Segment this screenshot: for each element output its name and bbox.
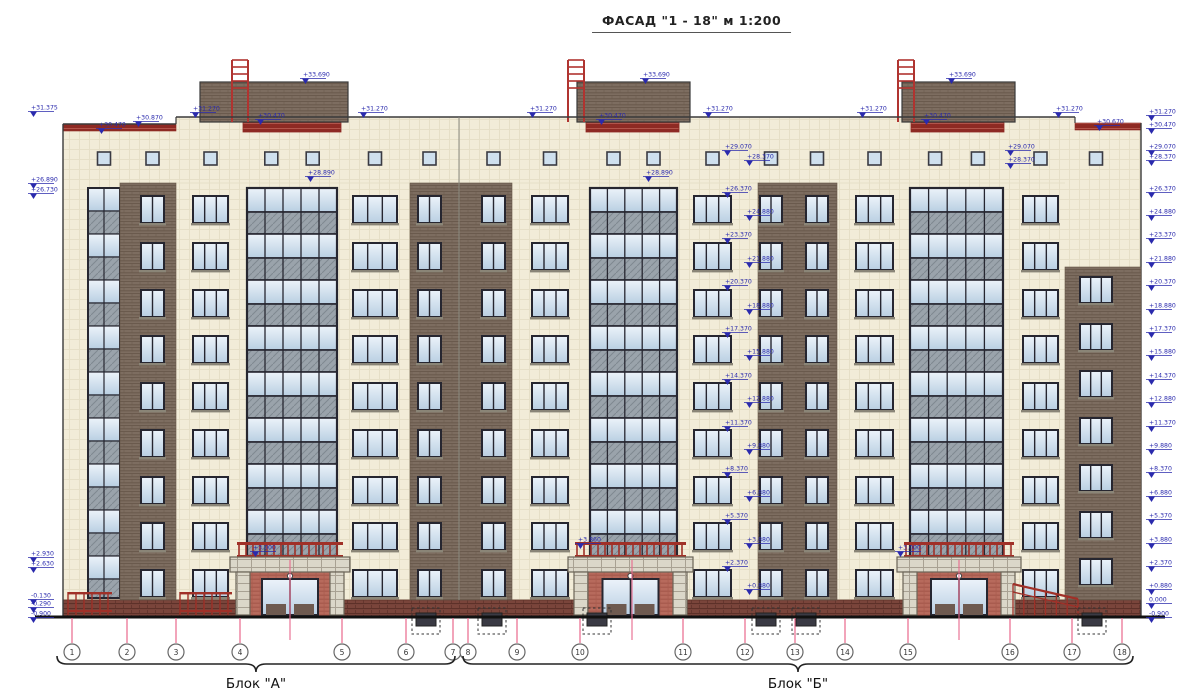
svg-text:+31.270: +31.270	[530, 106, 557, 113]
svg-text:+3.880: +3.880	[1149, 537, 1172, 544]
svg-text:2: 2	[125, 648, 130, 657]
svg-text:-0.900: -0.900	[1149, 611, 1169, 618]
svg-text:9: 9	[515, 648, 520, 657]
drawing-sheet: ФАСАД "1 - 18" м 1:200 12345678910111213…	[0, 0, 1200, 696]
bay-glazed	[590, 152, 677, 556]
elevation-marker: +30.470	[1146, 122, 1176, 135]
svg-text:6: 6	[404, 648, 409, 657]
svg-text:+2.370: +2.370	[725, 560, 748, 567]
svg-text:+30.470: +30.470	[258, 113, 285, 120]
svg-text:+3.880: +3.880	[747, 537, 770, 544]
svg-text:16: 16	[1005, 648, 1015, 657]
elevation-marker: +21.880	[1146, 256, 1176, 269]
svg-text:+29.070: +29.070	[725, 144, 752, 151]
svg-text:+5.370: +5.370	[1149, 513, 1172, 520]
axis-marker-3: 3	[168, 618, 184, 660]
svg-text:+26.890: +26.890	[31, 177, 58, 184]
svg-text:+5.370: +5.370	[725, 513, 748, 520]
svg-text:+30.470: +30.470	[924, 113, 951, 120]
elevation-marker: +0.880	[1146, 583, 1172, 596]
svg-text:+2.630: +2.630	[31, 561, 54, 568]
elevation-marker: +6.880	[1146, 490, 1172, 503]
axis-marker-14: 14	[837, 618, 853, 660]
elevation-marker: +14.370	[1146, 373, 1176, 386]
bay-glazed	[910, 152, 1003, 556]
block-brace: Блок "Б"	[463, 656, 1133, 692]
block-label: Блок "Б"	[768, 676, 828, 692]
svg-text:+17.370: +17.370	[1149, 326, 1176, 333]
svg-text:+8.370: +8.370	[1149, 466, 1172, 473]
elevation-marker: +9.880	[1146, 443, 1172, 456]
svg-text:+2.930: +2.930	[31, 551, 54, 558]
svg-text:+3.000: +3.000	[898, 545, 921, 552]
elevation-marker: -0.900	[28, 611, 54, 624]
svg-text:7: 7	[451, 648, 456, 657]
svg-text:+30.470: +30.470	[99, 122, 126, 129]
svg-text:+9.880: +9.880	[1149, 443, 1172, 450]
bay-stair	[88, 152, 120, 598]
axis-marker-10: 10	[572, 618, 588, 660]
svg-text:+29.070: +29.070	[1008, 144, 1035, 151]
svg-text:14: 14	[840, 648, 850, 657]
svg-text:+26.370: +26.370	[1149, 186, 1176, 193]
svg-text:+12.880: +12.880	[747, 396, 774, 403]
bay-glazed	[247, 152, 337, 556]
svg-text:10: 10	[575, 648, 585, 657]
svg-text:+18.880: +18.880	[747, 303, 774, 310]
elevation-marker: +31.270	[527, 106, 557, 119]
elevation-marker: -0.900	[1146, 611, 1172, 624]
elevation-marker: +18.880	[1146, 303, 1176, 316]
svg-text:+31.270: +31.270	[1149, 109, 1176, 116]
bay-brick	[410, 152, 512, 600]
block-brace: Блок "А"	[57, 656, 455, 692]
axis-marker-11: 11	[675, 618, 691, 660]
svg-text:+15.880: +15.880	[1149, 349, 1176, 356]
svg-text:+23.370: +23.370	[1149, 232, 1176, 239]
elevation-left: +31.375+26.890+26.730+2.930+2.630-0.130-…	[28, 105, 58, 624]
axis-marker-7: 7	[445, 618, 461, 660]
axis-marker-12: 12	[737, 618, 753, 660]
elevation-marker: +31.270	[1146, 109, 1176, 122]
svg-text:17: 17	[1067, 648, 1077, 657]
axis-marker-16: 16	[1002, 618, 1018, 660]
svg-text:+6.880: +6.880	[747, 490, 770, 497]
svg-text:+0.880: +0.880	[747, 583, 770, 590]
svg-text:+33.690: +33.690	[643, 72, 670, 79]
svg-text:13: 13	[790, 648, 800, 657]
elevation-right: +31.270+30.470+29.070+28.370+26.370+24.8…	[1146, 109, 1176, 624]
elevation-marker: +17.370	[1146, 326, 1176, 339]
svg-text:+24.880: +24.880	[747, 209, 774, 216]
axis-marker-15: 15	[900, 618, 916, 660]
svg-text:+30.670: +30.670	[1097, 119, 1124, 126]
svg-text:+28.370: +28.370	[1008, 157, 1035, 164]
elevation-marker: +5.370	[1146, 513, 1172, 526]
facade-elevation-drawing: 123456789101112131415161718Блок "А"Блок …	[0, 0, 1200, 696]
svg-text:+31.270: +31.270	[361, 106, 388, 113]
svg-text:3: 3	[174, 648, 179, 657]
svg-text:+0.880: +0.880	[1149, 583, 1172, 590]
elevation-marker: +2.370	[1146, 560, 1172, 573]
block-label: Блок "А"	[226, 676, 286, 692]
bay-brick	[120, 152, 176, 600]
svg-text:+20.370: +20.370	[725, 279, 752, 286]
svg-text:+28.890: +28.890	[308, 170, 335, 177]
svg-text:+8.370: +8.370	[725, 466, 748, 473]
axis-marker-9: 9	[509, 618, 525, 660]
svg-text:+31.270: +31.270	[860, 106, 887, 113]
axis-marker-5: 5	[334, 618, 350, 660]
svg-text:+28.370: +28.370	[747, 154, 774, 161]
elevation-marker: +26.370	[1146, 186, 1176, 199]
elevation-marker: +23.370	[1146, 232, 1176, 245]
elevation-marker: +26.730	[28, 187, 58, 200]
elevation-marker: +11.370	[1146, 420, 1176, 433]
svg-text:+31.270: +31.270	[706, 106, 733, 113]
axis-marker-18: 18	[1114, 618, 1130, 660]
svg-text:+31.270: +31.270	[1056, 106, 1083, 113]
svg-text:+18.880: +18.880	[1149, 303, 1176, 310]
svg-text:+33.690: +33.690	[303, 72, 330, 79]
elevation-marker: +8.370	[1146, 466, 1172, 479]
svg-text:+24.880: +24.880	[1149, 209, 1176, 216]
elevation-marker: +31.270	[703, 106, 733, 119]
svg-text:1: 1	[70, 648, 75, 657]
svg-text:+30.470: +30.470	[599, 113, 626, 120]
elevation-marker: 0.000	[1146, 597, 1172, 610]
svg-text:+28.890: +28.890	[646, 170, 673, 177]
bay-brick	[758, 152, 837, 600]
svg-text:+30.470: +30.470	[1149, 122, 1176, 129]
svg-text:5: 5	[340, 648, 345, 657]
drawing-title: ФАСАД "1 - 18" м 1:200	[592, 13, 791, 33]
svg-text:+31.270: +31.270	[193, 106, 220, 113]
svg-text:+11.370: +11.370	[1149, 420, 1176, 427]
svg-text:+26.370: +26.370	[725, 186, 752, 193]
elevation-marker: +15.880	[1146, 349, 1176, 362]
elevation-marker: +28.370	[1146, 154, 1176, 167]
elevation-marker: +20.370	[1146, 279, 1176, 292]
svg-text:+2.370: +2.370	[1149, 560, 1172, 567]
svg-text:-0.900: -0.900	[31, 611, 51, 618]
axis-marker-4: 4	[232, 618, 248, 660]
svg-text:+14.370: +14.370	[725, 373, 752, 380]
elevation-marker: +31.270	[358, 106, 388, 119]
svg-text:0.000: 0.000	[1149, 597, 1167, 604]
svg-text:+31.375: +31.375	[31, 105, 58, 112]
svg-text:+15.880: +15.880	[747, 349, 774, 356]
svg-text:+21.880: +21.880	[1149, 256, 1176, 263]
svg-text:+11.370: +11.370	[725, 420, 752, 427]
svg-text:11: 11	[678, 648, 688, 657]
svg-text:+17.370: +17.370	[725, 326, 752, 333]
svg-text:+9.880: +9.880	[747, 443, 770, 450]
svg-text:+28.370: +28.370	[1149, 154, 1176, 161]
svg-text:+33.690: +33.690	[949, 72, 976, 79]
penthouse	[568, 60, 690, 132]
svg-text:+3.860: +3.860	[578, 537, 601, 544]
svg-text:+29.070: +29.070	[1149, 144, 1176, 151]
elevation-marker: +12.880	[1146, 396, 1176, 409]
svg-text:+20.370: +20.370	[1149, 279, 1176, 286]
axis-marker-2: 2	[119, 618, 135, 660]
elevation-marker: +31.270	[857, 106, 887, 119]
svg-text:+3.000: +3.000	[253, 545, 276, 552]
svg-text:12: 12	[740, 648, 750, 657]
svg-text:+30.870: +30.870	[136, 115, 163, 122]
svg-text:+26.730: +26.730	[31, 187, 58, 194]
svg-text:+6.880: +6.880	[1149, 490, 1172, 497]
svg-text:18: 18	[1117, 648, 1127, 657]
svg-text:+21.880: +21.880	[747, 256, 774, 263]
svg-text:-0.290: -0.290	[31, 601, 51, 608]
elevation-marker: +2.630	[28, 561, 54, 574]
elevation-marker: +24.880	[1146, 209, 1176, 222]
axis-marker-1: 1	[64, 618, 80, 660]
svg-text:-0.130: -0.130	[31, 593, 51, 600]
elevation-marker: +31.270	[1053, 106, 1083, 119]
svg-text:+12.880: +12.880	[1149, 396, 1176, 403]
svg-text:4: 4	[238, 648, 243, 657]
axis-marker-8: 8	[460, 618, 476, 660]
svg-text:+23.370: +23.370	[725, 232, 752, 239]
svg-text:15: 15	[903, 648, 913, 657]
elevation-marker: +3.880	[1146, 537, 1172, 550]
elevation-marker: +31.375	[28, 105, 58, 118]
svg-text:8: 8	[466, 648, 471, 657]
svg-text:+14.370: +14.370	[1149, 373, 1176, 380]
